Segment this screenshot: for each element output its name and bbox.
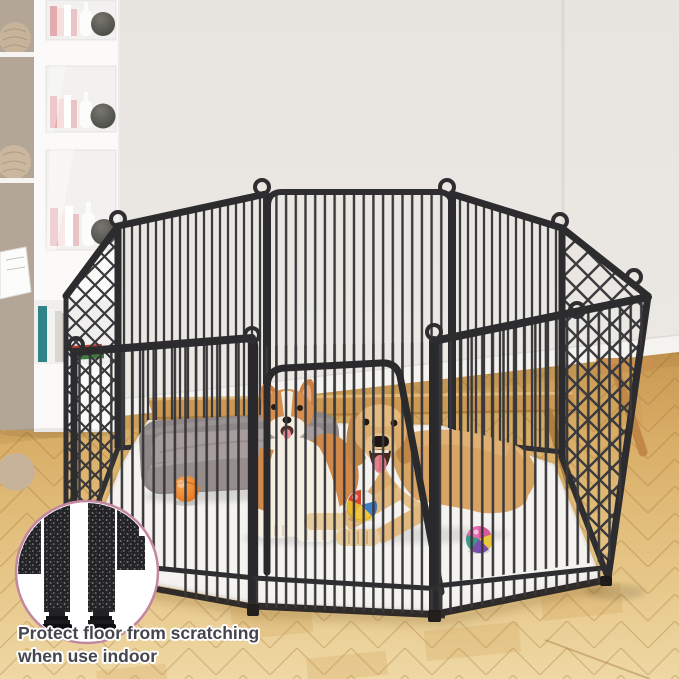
magazine [0,247,31,299]
product-photo: Protect floor from scratching when use i… [0,0,679,679]
front-door-panel [256,342,436,586]
caption-line-2: when use indoor [18,645,348,668]
scene-illustration [0,0,679,679]
inset-right-post [88,498,115,612]
caption-line-1: Protect floor from scratching [18,622,348,645]
floor-protection-caption: Protect floor from scratching when use i… [18,622,348,668]
